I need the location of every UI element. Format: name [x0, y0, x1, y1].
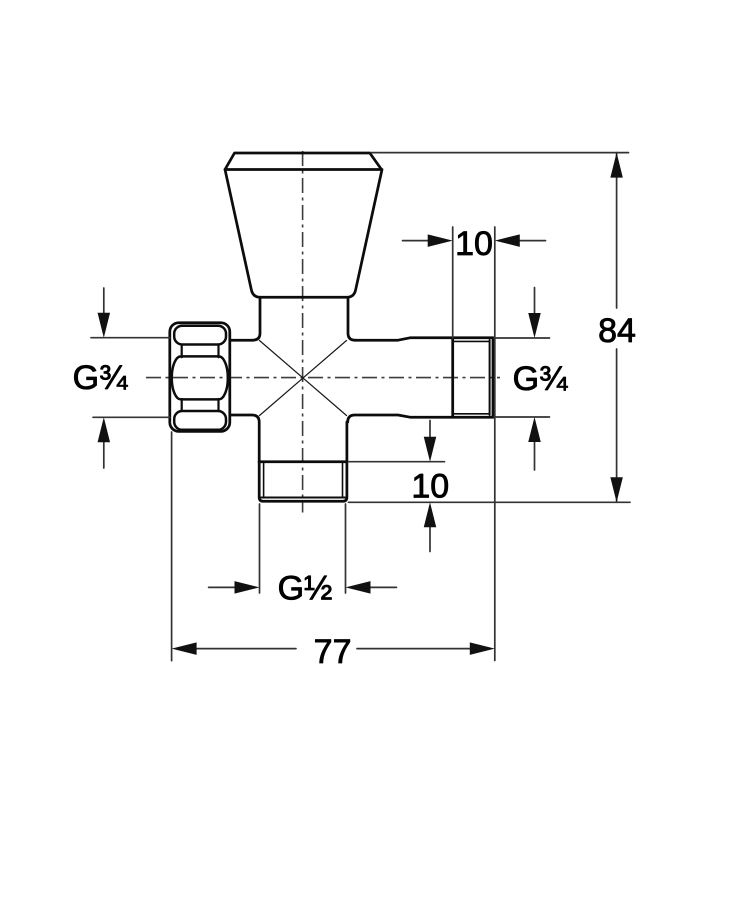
svg-text:10: 10 [411, 468, 449, 506]
svg-text:77: 77 [314, 633, 352, 671]
svg-text:G¾: G¾ [513, 360, 568, 398]
svg-text:G¾: G¾ [73, 359, 128, 397]
svg-text:84: 84 [598, 312, 636, 350]
svg-text:G½: G½ [278, 570, 333, 608]
svg-text:10: 10 [455, 225, 493, 263]
